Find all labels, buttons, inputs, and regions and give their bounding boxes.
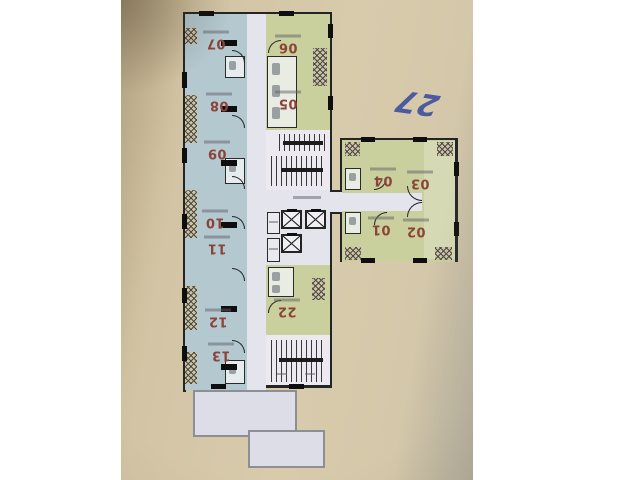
window-marker: [361, 137, 375, 142]
unit-caption-smudge: [204, 141, 230, 144]
unit-caption-smudge: [407, 171, 433, 174]
unit-number: 01: [371, 222, 390, 237]
window-marker: [182, 288, 187, 303]
kitchen-marker: [221, 160, 237, 166]
unit-label-06: 06: [275, 35, 301, 54]
unit-label-03: 03: [407, 171, 433, 190]
window-marker: [279, 11, 294, 16]
unit-number: 04: [373, 173, 392, 188]
floor-plan-photo: 07 06 08 05 09 10 11 12 13 22 04 03: [121, 0, 473, 480]
window-marker: [361, 258, 375, 263]
balcony-hatch: [185, 28, 197, 44]
balcony-hatch: [312, 278, 325, 300]
window-marker: [328, 24, 333, 38]
unit-number: 02: [406, 224, 425, 239]
unit-number: 22: [277, 304, 296, 319]
window-marker: [182, 346, 187, 361]
balcony-hatch: [435, 247, 452, 260]
corridor-vertical: [247, 14, 266, 390]
window-marker: [328, 96, 333, 110]
unit-caption-smudge: [206, 93, 232, 96]
unit-caption-smudge: [208, 343, 234, 346]
window-marker: [199, 11, 214, 16]
stair-label-smudge: [305, 373, 315, 375]
window-marker: [454, 162, 459, 176]
window-marker: [413, 258, 427, 263]
unit-number: 03: [410, 176, 429, 191]
unit-label-11: 11: [204, 236, 230, 255]
balcony-hatch: [185, 95, 197, 143]
unit-caption-smudge: [203, 31, 229, 34]
unit-caption-smudge: [368, 217, 394, 220]
stair-handrail: [281, 168, 323, 172]
window-marker: [182, 72, 187, 88]
unit-caption-smudge: [370, 168, 396, 171]
balcony-hatch: [437, 142, 453, 156]
unit-number: 08: [209, 98, 228, 113]
unit-label-08: 08: [206, 93, 232, 112]
stair-handrail: [279, 358, 323, 362]
unit-number: 09: [207, 146, 226, 161]
unit-caption-smudge: [205, 309, 231, 312]
window-marker: [454, 222, 459, 236]
room-label-smudge: [269, 221, 278, 223]
terrace-outline-right: [248, 430, 325, 468]
bathroom: [268, 267, 294, 297]
balcony-hatch: [313, 48, 327, 86]
unit-label-13: 13: [208, 343, 234, 362]
balcony-hatch: [345, 247, 361, 260]
handwritten-note: 27: [392, 83, 443, 123]
kitchen-marker: [221, 364, 237, 370]
bathroom: [345, 168, 361, 190]
window-marker: [211, 384, 226, 389]
stair-label-smudge: [277, 373, 287, 375]
unit-label-02: 02: [403, 219, 429, 238]
elevator-icon: [305, 210, 326, 229]
unit-number: 07: [206, 36, 225, 51]
unit-label-22: 22: [274, 299, 300, 318]
unit-caption-smudge: [204, 236, 230, 239]
right-wing-bath-column: [424, 141, 455, 259]
unit-label-01: 01: [368, 217, 394, 236]
unit-caption-smudge: [202, 210, 228, 213]
window-marker: [289, 384, 304, 389]
unit-caption-smudge: [403, 219, 429, 222]
bathroom: [345, 212, 361, 234]
corridor-connector: [330, 192, 342, 212]
elevator-icon: [281, 210, 302, 229]
unit-label-04: 04: [370, 168, 396, 187]
balcony-hatch: [345, 142, 360, 156]
unit-label-05: 05: [275, 91, 301, 110]
stair-handrail: [283, 141, 323, 145]
wall: [330, 212, 342, 214]
unit-label-07: 07: [203, 31, 229, 50]
storage-room: [267, 212, 280, 234]
unit-number: 12: [208, 314, 227, 329]
unit-caption-smudge: [275, 91, 301, 94]
unit-number: 11: [207, 241, 226, 256]
elevator-icon: [281, 234, 302, 253]
unit-label-10: 10: [202, 210, 228, 229]
unit-number: 13: [211, 348, 230, 363]
wall: [455, 138, 458, 262]
unit-caption-smudge: [274, 299, 300, 302]
storage-room: [267, 238, 280, 262]
unit-label-12: 12: [205, 309, 231, 328]
window-marker: [413, 137, 427, 142]
unit-number: 10: [205, 215, 224, 230]
unit-number: 06: [278, 40, 297, 55]
window-marker: [182, 148, 187, 163]
window-marker: [182, 214, 187, 229]
room-label-smudge: [269, 248, 278, 250]
unit-caption-smudge: [275, 35, 301, 38]
corridor-label-smudge: [293, 196, 321, 199]
unit-number: 05: [278, 96, 297, 111]
unit-label-09: 09: [204, 141, 230, 160]
